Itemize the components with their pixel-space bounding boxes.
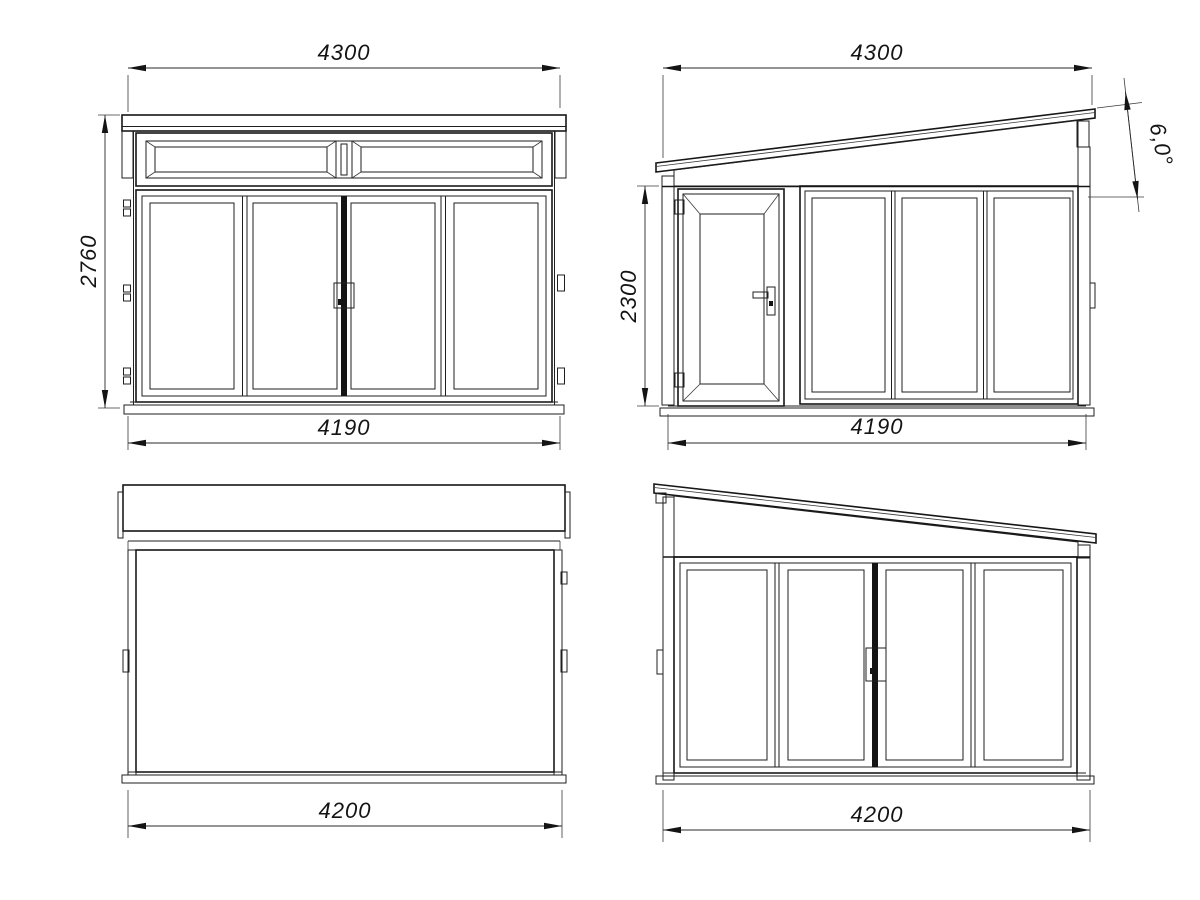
front-sliding-glass-doors <box>136 190 552 402</box>
side-glazed-glass-pane-2 <box>788 570 864 760</box>
front-glass-pane-2 <box>253 203 337 389</box>
side-entry-glass-pane-1 <box>812 198 885 392</box>
rear-base-sill <box>122 772 566 783</box>
side-glazed-glass-pane-3 <box>886 570 963 760</box>
front-transom-windows <box>136 133 552 186</box>
front-door-meeting-stile <box>341 196 347 396</box>
side-glazed-right-corner-trim <box>1077 558 1090 780</box>
front-base-sill <box>124 402 564 414</box>
dim-front-height: 2760 <box>76 115 120 408</box>
side-entry-glass-pane-3 <box>994 198 1070 392</box>
dim-rear-wall-width: 4200 <box>128 790 562 838</box>
side-glazed-base-sill <box>656 773 1094 784</box>
front-glass-pane-1 <box>150 203 234 389</box>
dim-side-entry-roof-width: 4300 <box>663 40 1092 158</box>
elevation-drawing: 4300 2760 4190 <box>0 0 1200 900</box>
front-glass-pane-3 <box>351 203 435 389</box>
side-entry-left-corner-trim <box>662 176 674 405</box>
side-entry-door-glass <box>700 214 764 384</box>
side-entry-roof <box>656 109 1095 172</box>
side-glazed-sliding-doors <box>674 557 1077 773</box>
dim-label-side-entry-wall-height: 2300 <box>616 270 641 324</box>
side-glazed-gutter-end <box>1078 545 1090 558</box>
elevation-drawing-sheet: 4300 2760 4190 <box>0 0 1200 900</box>
side-entry-windows <box>800 186 1078 404</box>
side-glazed-batten-band <box>674 496 1078 557</box>
dim-label-side-glazed-wall-width: 4200 <box>851 802 904 827</box>
dim-label-rear-wall-width: 4200 <box>319 798 372 823</box>
side-glazed-meeting-stile <box>872 563 878 767</box>
front-elevation-view: 4300 2760 4190 <box>76 40 566 450</box>
side-entry-elevation-view: 4300 6,0° 2300 4190 <box>616 40 1178 450</box>
front-right-corner-cap <box>555 131 566 178</box>
dim-front-wall-width: 4190 <box>128 415 560 450</box>
dim-label-side-entry-wall-width: 4190 <box>851 414 904 439</box>
dim-label-side-entry-roof-width: 4300 <box>851 40 904 65</box>
rear-wall-siding <box>123 550 567 775</box>
side-entry-door <box>675 189 784 406</box>
front-left-corner-cap <box>122 131 133 178</box>
rear-roof-fascia <box>118 485 570 550</box>
side-glazed-elevation-view: 4200 <box>654 484 1096 842</box>
dim-side-entry-wall-width: 4190 <box>668 414 1086 450</box>
dim-label-front-height: 2760 <box>76 235 101 289</box>
rear-elevation-view: 4200 <box>118 485 570 838</box>
dim-label-side-entry-roof-angle: 6,0° <box>1145 121 1178 169</box>
dim-side-glazed-wall-width: 4200 <box>663 790 1090 842</box>
transom-center-mullion <box>336 141 352 178</box>
side-glazed-glass-pane-1 <box>687 570 767 760</box>
front-glass-pane-4 <box>454 203 538 389</box>
dim-front-roof-width: 4300 <box>128 40 560 112</box>
side-glazed-left-corner-trim <box>663 497 674 780</box>
side-entry-gutter-end <box>1077 121 1089 147</box>
side-glazed-glass-pane-4 <box>984 570 1063 760</box>
side-entry-glass-pane-2 <box>902 198 977 392</box>
side-glazed-roof <box>654 484 1096 558</box>
dim-side-entry-wall-height: 2300 <box>616 186 659 406</box>
dim-label-front-roof-width: 4300 <box>318 40 371 65</box>
dim-side-entry-roof-angle: 6,0° <box>1088 78 1178 212</box>
dim-label-front-wall-width: 4190 <box>318 415 371 440</box>
